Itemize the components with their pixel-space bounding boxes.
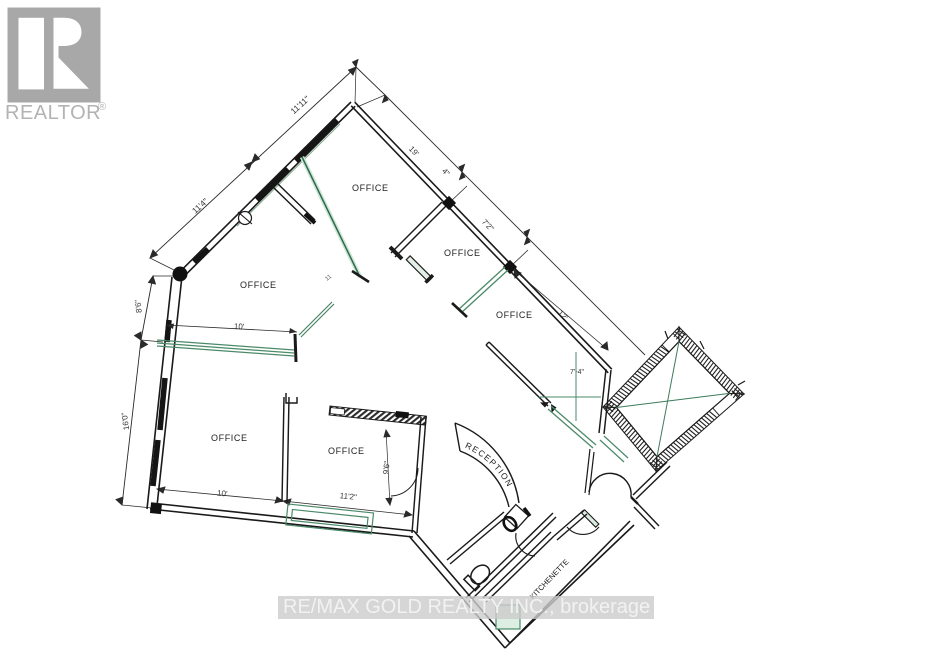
svg-text:OFFICE: OFFICE — [240, 280, 277, 290]
svg-text:11: 11 — [324, 274, 333, 283]
svg-text:8'6": 8'6" — [133, 299, 144, 313]
svg-text:KITCHENETTE: KITCHENETTE — [528, 557, 571, 601]
svg-text:OFFICE: OFFICE — [328, 446, 365, 456]
svg-text:19': 19' — [407, 144, 421, 158]
svg-text:9'6": 9'6" — [381, 460, 392, 474]
svg-text:®: ® — [98, 101, 106, 113]
svg-text:16'0": 16'0" — [120, 412, 131, 431]
svg-text:4": 4" — [440, 167, 452, 179]
svg-text:11'2": 11'2" — [339, 491, 357, 502]
svg-text:OFFICE: OFFICE — [444, 248, 481, 258]
svg-text:RE/MAX GOLD REALTY INC., broke: RE/MAX GOLD REALTY INC., brokerage — [283, 596, 650, 618]
svg-text:OFFICE: OFFICE — [352, 183, 389, 193]
svg-text:11'4": 11'4" — [190, 196, 210, 216]
svg-text:10': 10' — [234, 322, 245, 332]
svg-text:OFFICE: OFFICE — [496, 310, 533, 320]
svg-text:7'2": 7'2" — [480, 217, 496, 233]
svg-text:10': 10' — [217, 488, 229, 498]
svg-text:REALTOR: REALTOR — [5, 102, 101, 124]
svg-text:7'-4": 7'-4" — [570, 369, 584, 376]
svg-text:OFFICE: OFFICE — [211, 433, 248, 443]
svg-text:11'11": 11'11" — [288, 94, 311, 116]
svg-text:RECEPTION: RECEPTION — [464, 440, 515, 489]
